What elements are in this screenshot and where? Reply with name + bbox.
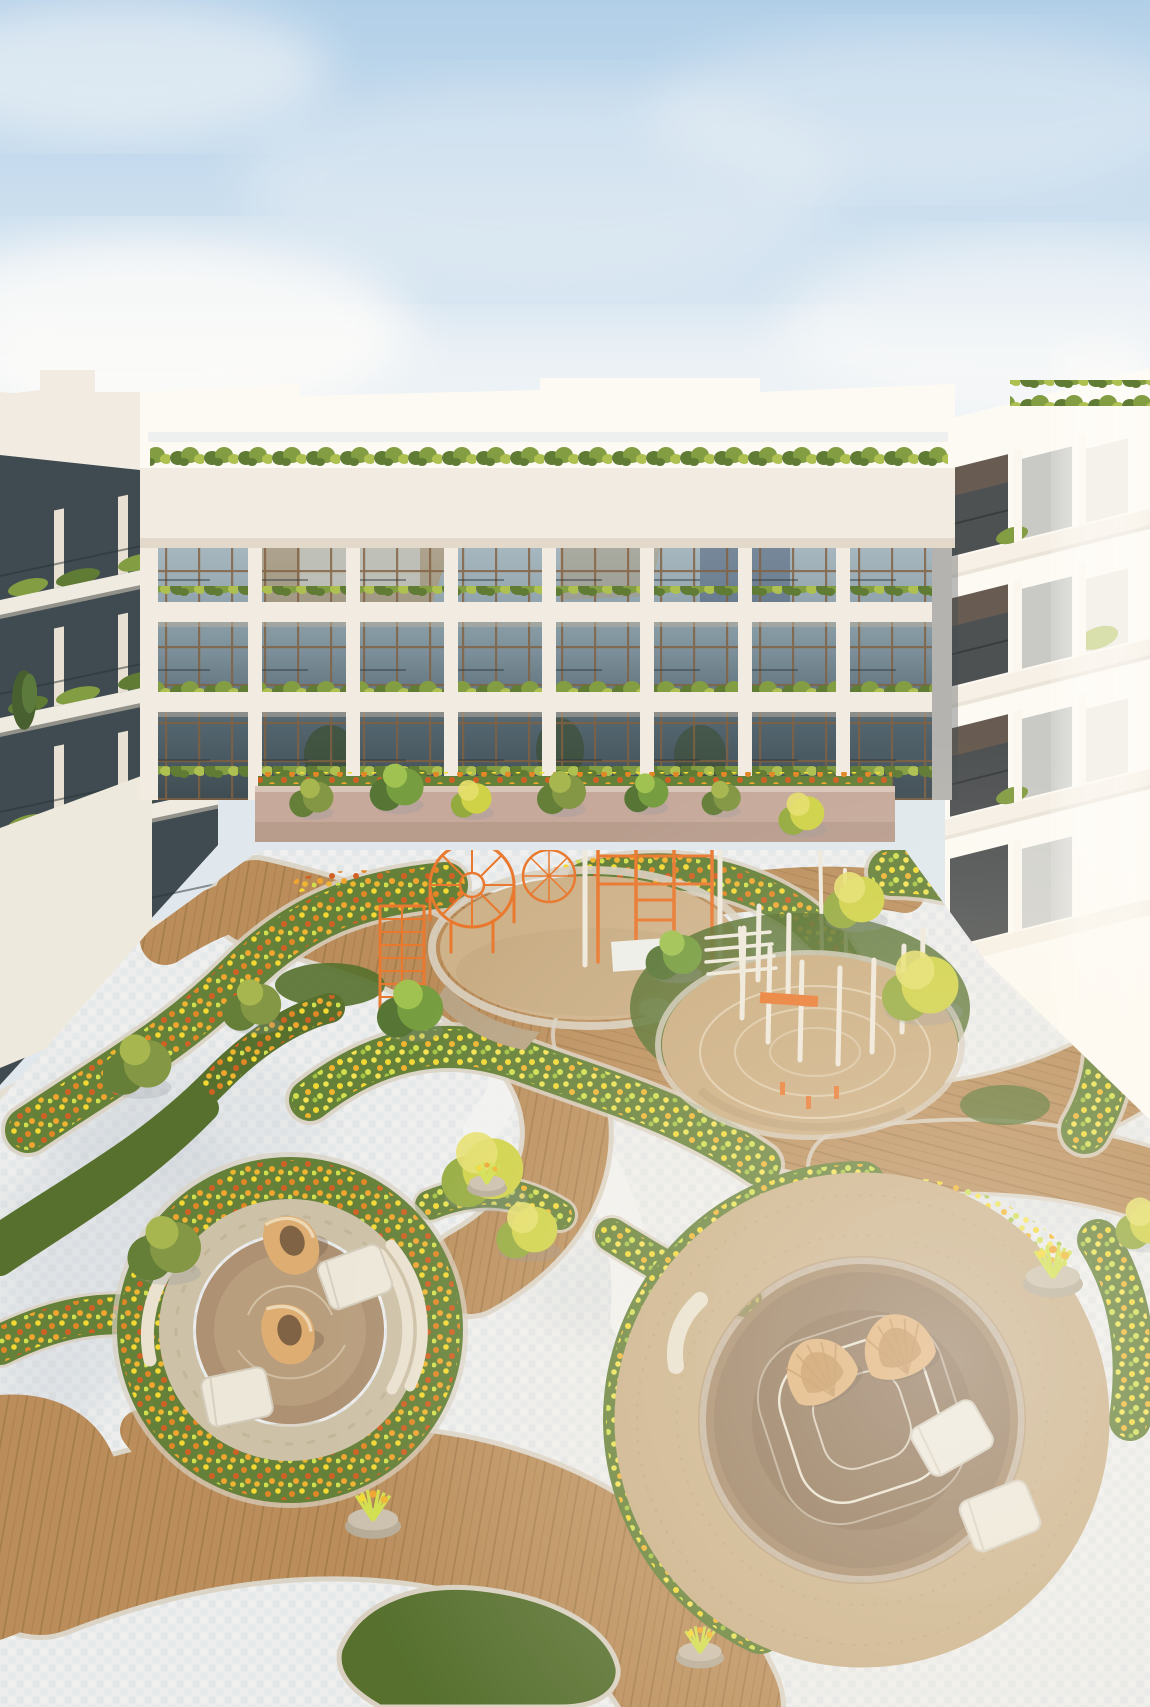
lighting-overlays [0, 0, 1150, 1707]
warm-tint [0, 0, 1150, 1707]
architectural-rendering: Aerial architectural rendering of a U-sh… [0, 0, 1150, 1707]
scene-svg: Aerial architectural rendering of a U-sh… [0, 0, 1150, 1707]
